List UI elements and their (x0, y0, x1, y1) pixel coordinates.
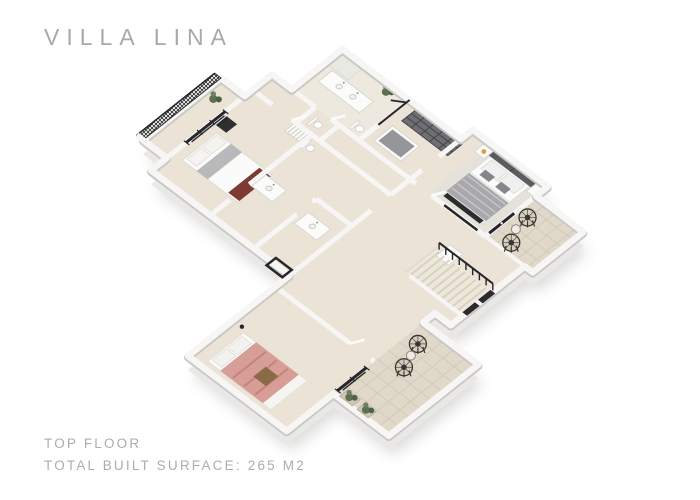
surface-label: TOTAL BUILT SURFACE: 265 M2 (44, 455, 306, 477)
plan-footer: TOP FLOOR TOTAL BUILT SURFACE: 265 M2 (44, 433, 306, 477)
floor-label: TOP FLOOR (44, 433, 306, 455)
floor-plan-page: { "header": { "title": "VILLA LINA" }, "… (0, 0, 700, 500)
floor-plan-render (0, 0, 700, 500)
